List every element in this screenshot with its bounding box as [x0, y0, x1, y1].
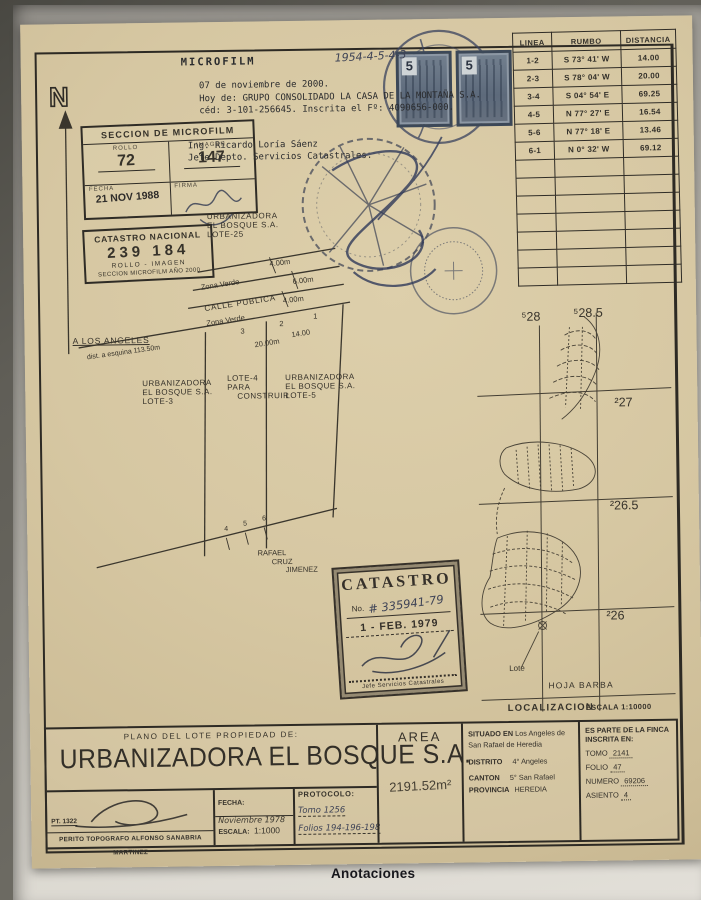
- grid-easting-528: ⁵28: [521, 309, 540, 324]
- catastro-signature: [348, 626, 455, 677]
- point-2: 2: [279, 320, 283, 329]
- neighbor-label: RAFAEL CRUZ JIMENEZ: [257, 549, 317, 576]
- microfilm-section-box: SECCION DE MICROFILM ROLLO 72 IMAGEN 147…: [80, 119, 258, 220]
- cell: S 78° 04' W: [552, 68, 621, 88]
- lot-4-label: LOTE-4 PARA CONSTRUIR: [227, 373, 289, 401]
- engineer-line: Jefe Depto. Servicios Catastrales.: [188, 150, 372, 165]
- grid-easting-528-5: ⁵28.5: [573, 306, 603, 321]
- annotations-heading: Anotaciones: [331, 866, 415, 881]
- cell: S 73° 41' W: [552, 50, 621, 70]
- cell: N 0° 32' W: [554, 140, 623, 160]
- grid-northing-227: ²27: [614, 395, 632, 410]
- cell: 14.00: [621, 48, 676, 67]
- col-linea: LINEA: [512, 32, 551, 52]
- cell: 16.54: [622, 102, 677, 121]
- north-arrow: N: [49, 82, 69, 113]
- cell: 3-4: [514, 87, 553, 106]
- lote-pointer-label: Lote: [509, 664, 525, 673]
- table-empty-row: [518, 264, 681, 286]
- microfilm-note: 07 de noviembre de 2000. Hoy de: GRUPO C…: [199, 76, 481, 117]
- cell: 69.12: [623, 138, 678, 157]
- cadastral-plan-document: N MICROFILM 1954-4-5-4-3 07 de noviembre…: [20, 15, 701, 868]
- col-distancia: DISTANCIA: [620, 29, 675, 49]
- cell: 13.46: [623, 120, 678, 139]
- catastro-number: # 335941-79: [368, 592, 445, 616]
- lot-3-label: URBANIZADORA EL BOSQUE S.A. LOTE-3: [142, 378, 213, 407]
- microfilm-label: MICROFILM: [181, 55, 256, 68]
- scanned-sheet: N MICROFILM 1954-4-5-4-3 07 de noviembre…: [13, 5, 701, 900]
- catastro-stamp: CATASTRO No. # 335941-79 1 - FEB. 1979 J…: [331, 559, 467, 699]
- catastro-nacional-stamp: CATASTRO NACIONAL 239 184 ROLLO - IMAGEN…: [82, 224, 214, 284]
- point-4: 4: [224, 526, 228, 534]
- cell: 6-1: [515, 141, 554, 160]
- grid-northing-226-5: ²26.5: [610, 498, 639, 513]
- point-5: 5: [243, 521, 247, 529]
- point-1: 1: [313, 313, 317, 322]
- point-6: 6: [262, 515, 266, 523]
- cell: N 77° 27' E: [553, 104, 622, 124]
- cell: N 77° 18' E: [554, 122, 623, 142]
- localizacion-caption: LOCALIZACION: [508, 703, 594, 715]
- localizacion-scale: ESCALA 1:10000: [586, 703, 652, 713]
- grid-northing-226: ²26: [606, 608, 624, 623]
- lot-5-label: URBANIZADORA EL BOSQUE S.A. LOTE-5: [285, 372, 356, 401]
- rollo-cell: ROLLO 72: [83, 142, 169, 185]
- engineer-note: Ing. Ricardo Loría Sáenz Jefe Depto. Ser…: [188, 138, 373, 165]
- cell: 5-6: [515, 123, 554, 142]
- cell: 4-5: [514, 105, 553, 124]
- bearing-table: LINEA RUMBO DISTANCIA 1-2S 73° 41' W14.0…: [513, 30, 681, 286]
- catastro-no-label: No.: [351, 604, 364, 614]
- fecha-cell: FECHA 21 NOV 1988: [85, 183, 171, 218]
- cell: 69.25: [622, 84, 677, 103]
- firma-cell: FIRMA: [169, 179, 256, 214]
- lot-25-label: URBANIZADORA EL BOSQUE S.A. LOTE-25: [207, 211, 279, 240]
- stamp-denomination: 5: [462, 56, 477, 74]
- cell: S 04° 54' E: [553, 86, 622, 106]
- cell: 2-3: [513, 69, 552, 88]
- point-3: 3: [240, 328, 244, 337]
- cell: 1-2: [513, 51, 552, 70]
- map-sheet-label: HOJA BARBA: [548, 681, 614, 692]
- catastro-stamp-footer: Jefe Servicios Catastrales: [349, 674, 457, 691]
- cell: 20.00: [621, 66, 676, 85]
- road-destination-label: A LOS ANGELES: [73, 336, 150, 347]
- rollo-value: 72: [97, 151, 154, 172]
- col-rumbo: RUMBO: [551, 31, 620, 52]
